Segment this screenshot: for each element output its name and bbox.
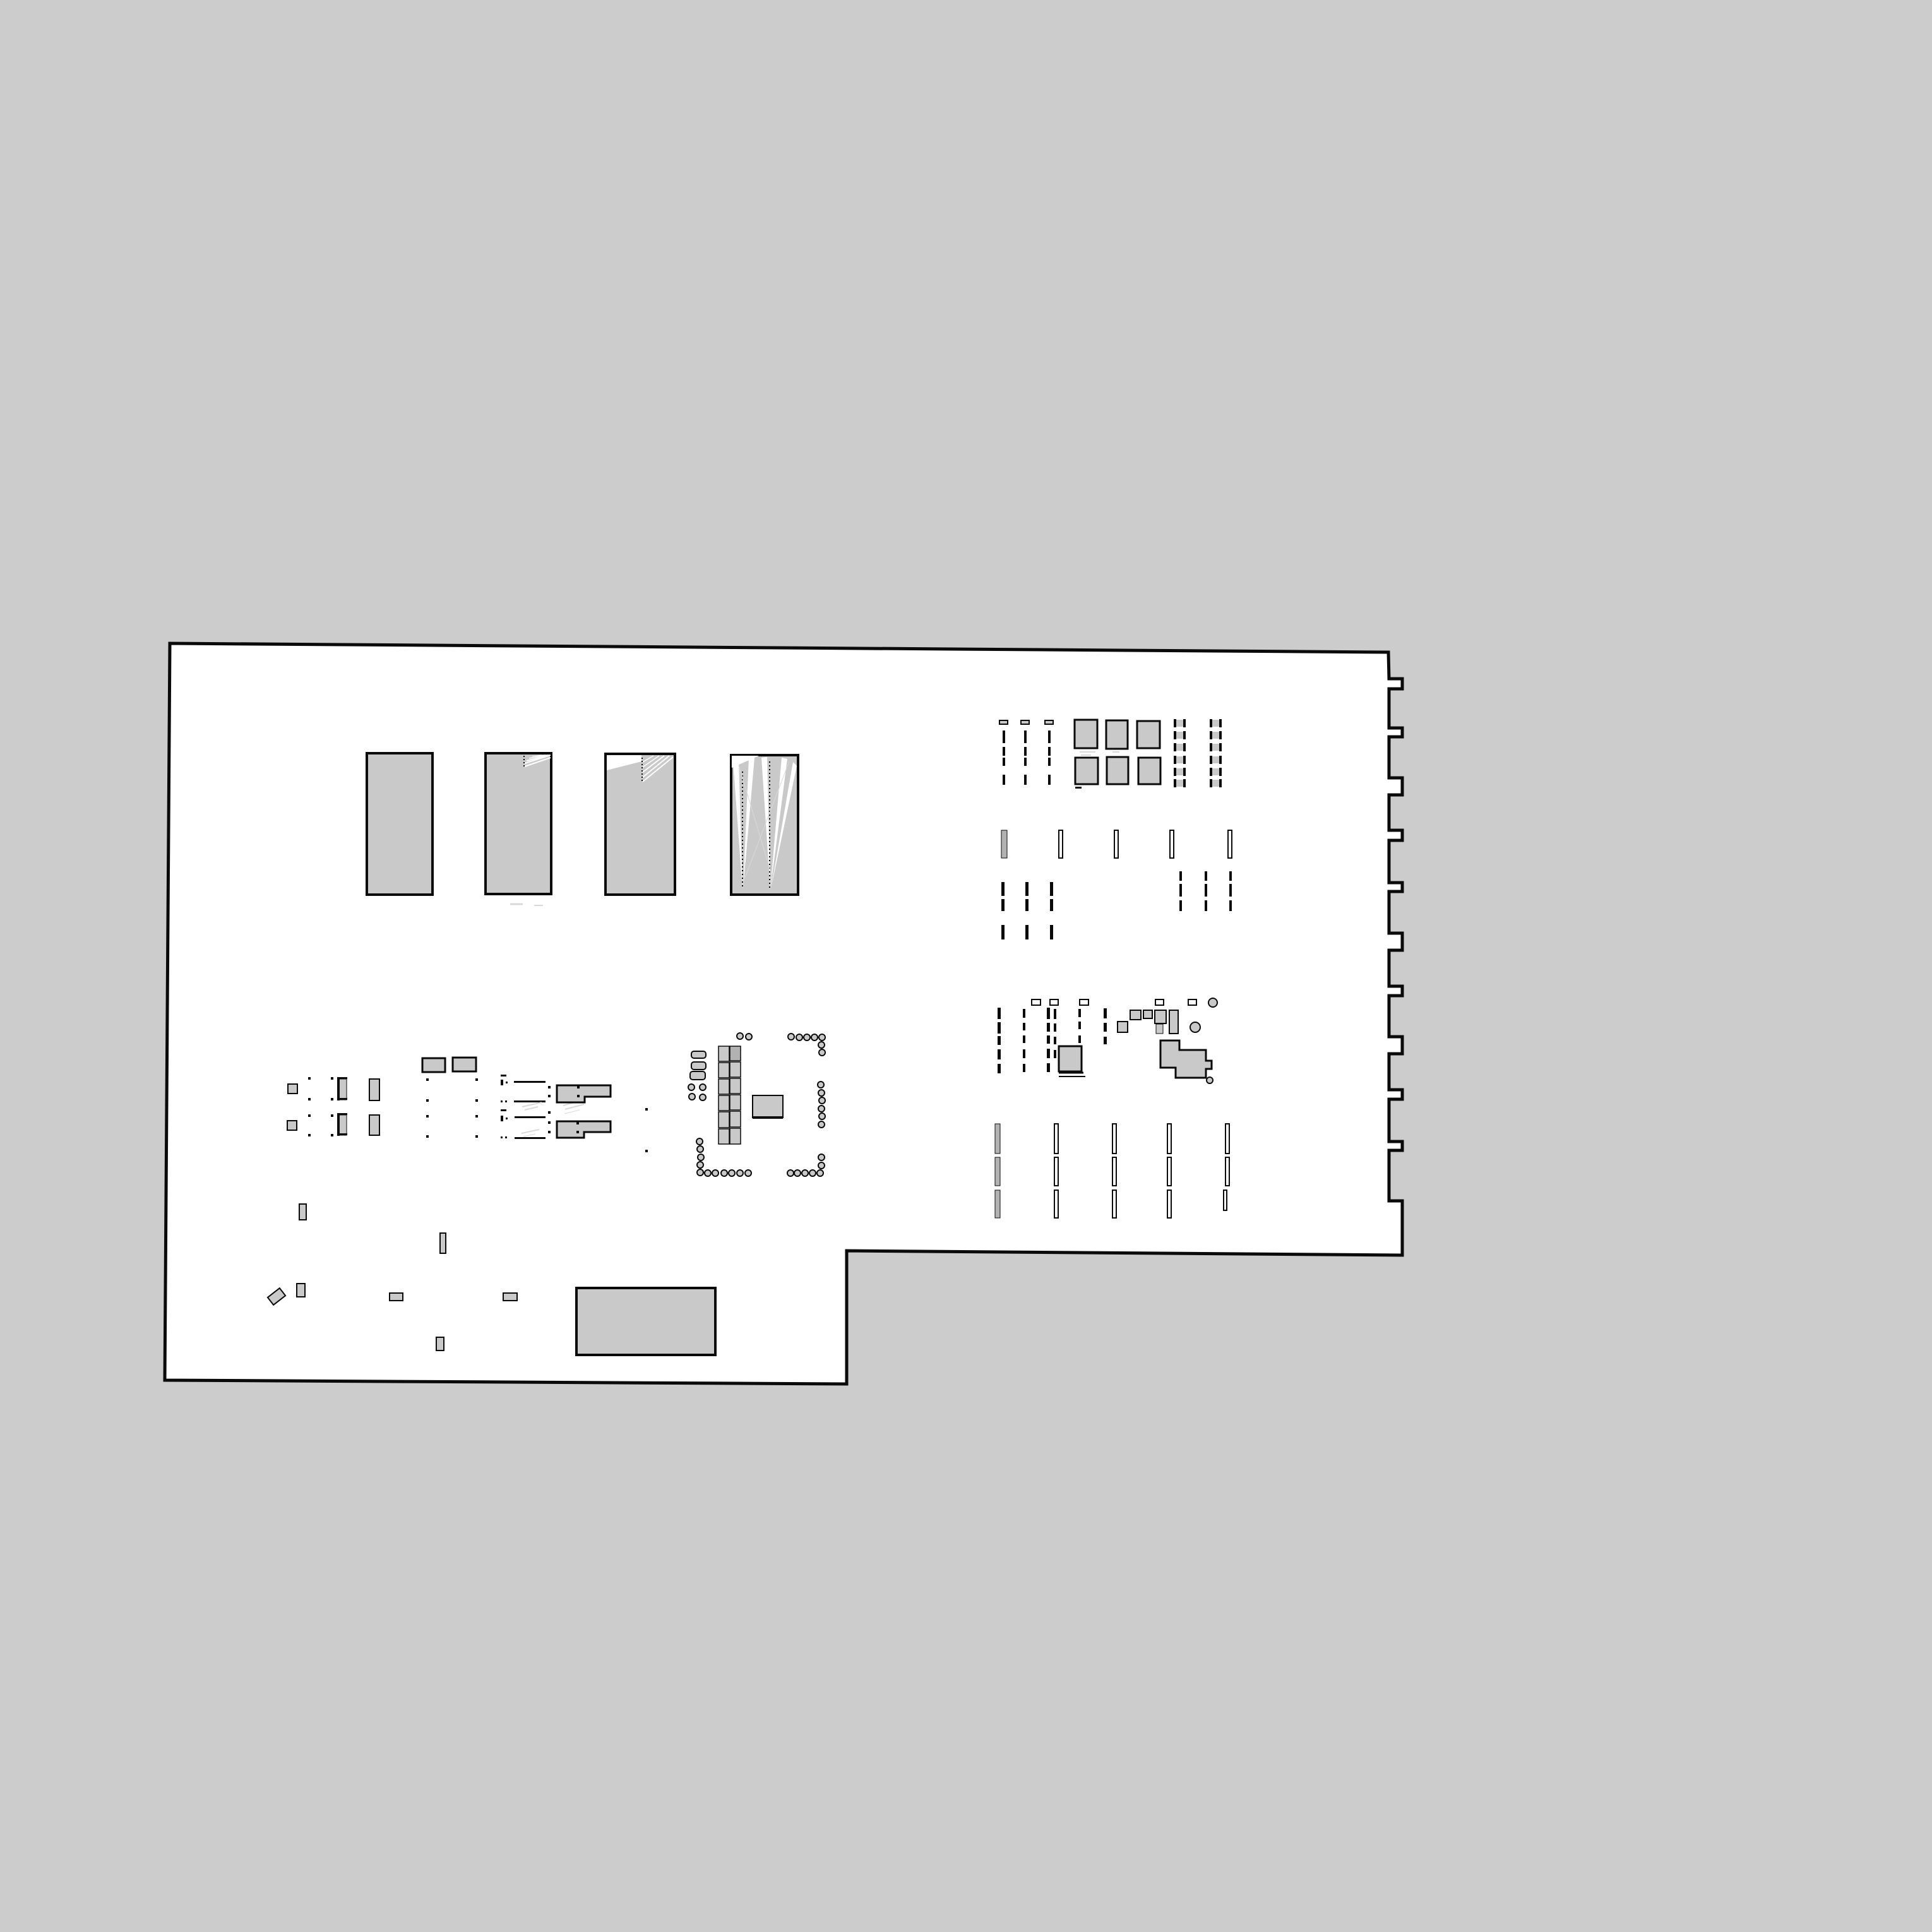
occupancy-grid-map: [0, 0, 1932, 1932]
floor-plan-canvas: [0, 0, 1932, 1932]
